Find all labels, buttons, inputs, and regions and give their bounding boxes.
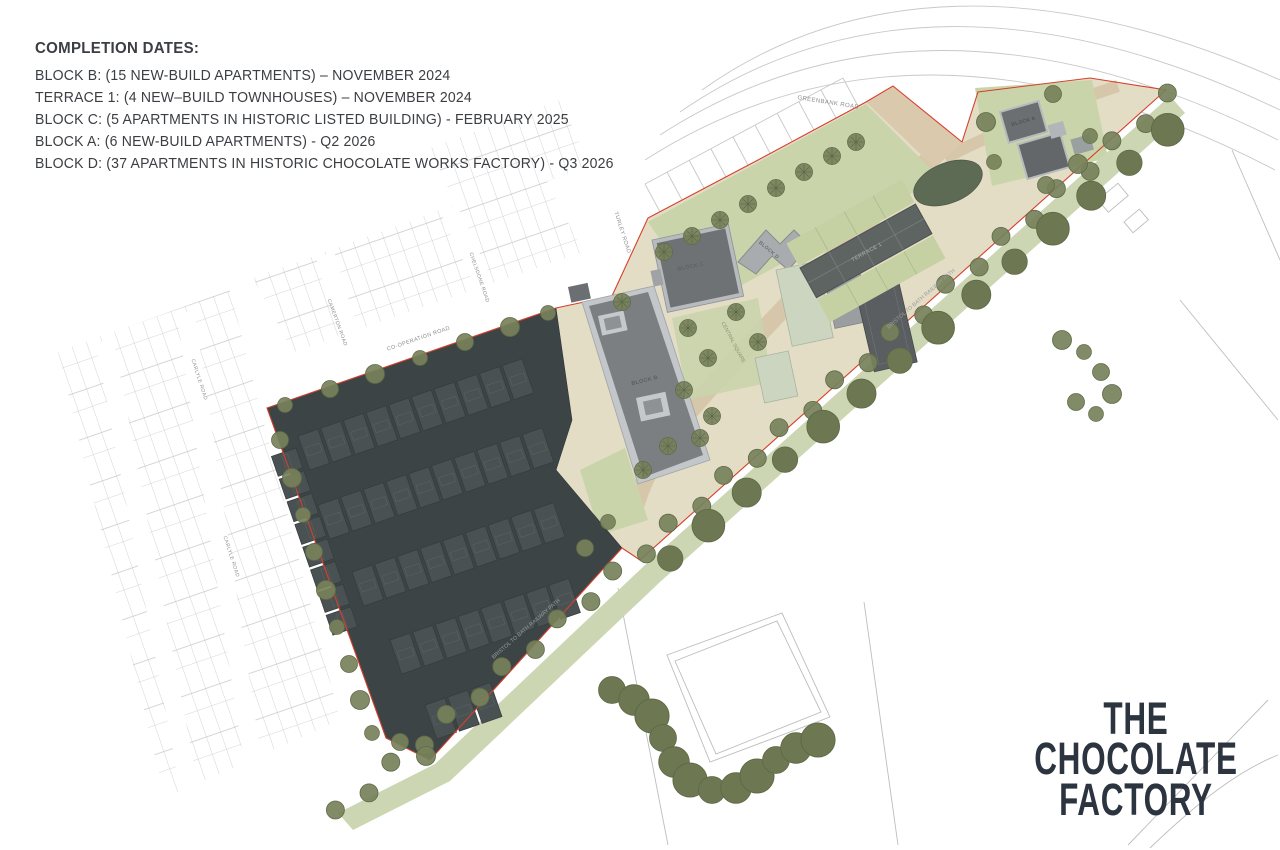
- tree-icon: [351, 691, 370, 710]
- tree-icon: [1158, 84, 1176, 102]
- hedge-tree-icon: [922, 311, 955, 344]
- completion-dates-annotation: COMPLETION DATES: BLOCK B: (15 NEW-BUILD…: [35, 40, 614, 175]
- tree-icon: [283, 469, 302, 488]
- tree-icon: [826, 371, 844, 389]
- tree-icon: [740, 196, 757, 213]
- tree-icon: [692, 430, 709, 447]
- site-plan-canvas: TERRACE 1 BLOCK A GREENBANK ROAD TURLEY …: [0, 0, 1280, 850]
- tree-icon: [768, 180, 785, 197]
- tree-icon: [437, 705, 455, 723]
- chocolate-factory-logo: THE CHOCOLATE FACTORY: [1035, 699, 1238, 821]
- tree-icon: [824, 148, 841, 165]
- tree-icon: [360, 784, 378, 802]
- hedge-tree-icon: [1117, 150, 1143, 176]
- tree-icon: [493, 658, 511, 676]
- tree-icon: [582, 593, 600, 611]
- tree-icon: [750, 334, 767, 351]
- hedge-tree-icon: [847, 379, 876, 408]
- completion-line-block-c: BLOCK C: (5 APARTMENTS IN HISTORIC LISTE…: [35, 109, 614, 131]
- tree-icon: [676, 382, 693, 399]
- tree-icon: [330, 620, 345, 635]
- tree-icon: [684, 228, 701, 245]
- hedge-tree-icon: [657, 546, 683, 572]
- tree-icon: [1093, 364, 1110, 381]
- tree-icon: [526, 641, 544, 659]
- tree-icon: [1053, 331, 1072, 350]
- road-label-turley: TURLEY ROAD: [612, 211, 631, 254]
- tree-icon: [660, 438, 677, 455]
- tree-icon: [637, 545, 655, 563]
- tree-icon: [604, 562, 622, 580]
- tree-icon: [987, 155, 1002, 170]
- small-building: [568, 283, 591, 303]
- tree-icon: [365, 726, 380, 741]
- tree-icon: [700, 350, 717, 367]
- tree-icon: [1045, 86, 1062, 103]
- hedge-tree-icon: [807, 410, 840, 443]
- hedge-tree-icon: [887, 348, 913, 374]
- tree-icon: [970, 258, 988, 276]
- tree-icon: [382, 753, 400, 771]
- tree-icon: [471, 688, 489, 706]
- tree-icon: [577, 540, 594, 557]
- tree-icon: [317, 581, 336, 600]
- hedge-tree-icon: [772, 447, 798, 473]
- hedge-tree-icon: [732, 478, 761, 507]
- tree-icon: [1083, 129, 1098, 144]
- tree-icon: [1103, 132, 1121, 150]
- tree-icon: [501, 318, 520, 337]
- tree-icon: [457, 334, 474, 351]
- hedge-tree-icon: [1002, 249, 1028, 275]
- tree-icon: [712, 212, 729, 229]
- tree-icon: [1089, 407, 1104, 422]
- tree-icon: [748, 449, 766, 467]
- tree-icon: [859, 354, 877, 372]
- hedge-tree-icon: [1037, 212, 1070, 245]
- tree-icon: [548, 610, 566, 628]
- completion-dates-title: COMPLETION DATES:: [35, 40, 614, 58]
- tree-icon: [977, 113, 996, 132]
- tree-icon: [272, 432, 289, 449]
- tree-icon: [417, 747, 436, 766]
- logo-line-factory: FACTORY: [1035, 780, 1238, 821]
- tree-icon: [296, 508, 311, 523]
- tree-icon: [1077, 345, 1092, 360]
- tree-icon: [770, 419, 788, 437]
- tree-icon: [1038, 177, 1055, 194]
- hedge-tree-icon: [1077, 181, 1106, 210]
- completion-line-block-d: BLOCK D: (37 APARTMENTS IN HISTORIC CHOC…: [35, 153, 614, 175]
- tree-icon: [728, 304, 745, 321]
- hedge-tree-icon: [962, 280, 991, 309]
- road-label-greenbank: GREENBANK ROAD: [797, 95, 860, 111]
- tree-icon: [796, 164, 813, 181]
- tree-icon: [680, 320, 697, 337]
- completion-line-block-a: BLOCK A: (6 NEW-BUILD APARTMENTS) - Q2 2…: [35, 131, 614, 153]
- tree-icon: [413, 351, 428, 366]
- tree-icon: [1069, 155, 1088, 174]
- tree-icon: [322, 381, 339, 398]
- tree-icon: [715, 466, 733, 484]
- tree-icon: [1103, 385, 1122, 404]
- tree-icon: [341, 656, 358, 673]
- hedge-tree-icon: [1151, 113, 1184, 146]
- tree-icon: [659, 514, 677, 532]
- tree-icon: [278, 398, 293, 413]
- tree-icon: [392, 734, 409, 751]
- tree-icon: [704, 408, 721, 425]
- tree-icon: [614, 294, 631, 311]
- tree-icon: [601, 515, 616, 530]
- tree-icon: [366, 365, 385, 384]
- completion-line-block-b: BLOCK B: (15 NEW-BUILD APARTMENTS) – NOV…: [35, 65, 614, 87]
- tree-icon: [326, 801, 344, 819]
- tree-icon: [541, 306, 556, 321]
- completion-line-terrace-1: TERRACE 1: (4 NEW–BUILD TOWNHOUSES) – NO…: [35, 87, 614, 109]
- tree-icon: [635, 462, 652, 479]
- tree-icon: [306, 544, 323, 561]
- hedge-tree-icon: [692, 509, 725, 542]
- tree-icon: [1068, 394, 1085, 411]
- tree-icon: [992, 227, 1010, 245]
- hedge-tree-icon: [801, 723, 835, 757]
- tree-icon: [848, 134, 865, 151]
- tree-icon: [656, 244, 673, 261]
